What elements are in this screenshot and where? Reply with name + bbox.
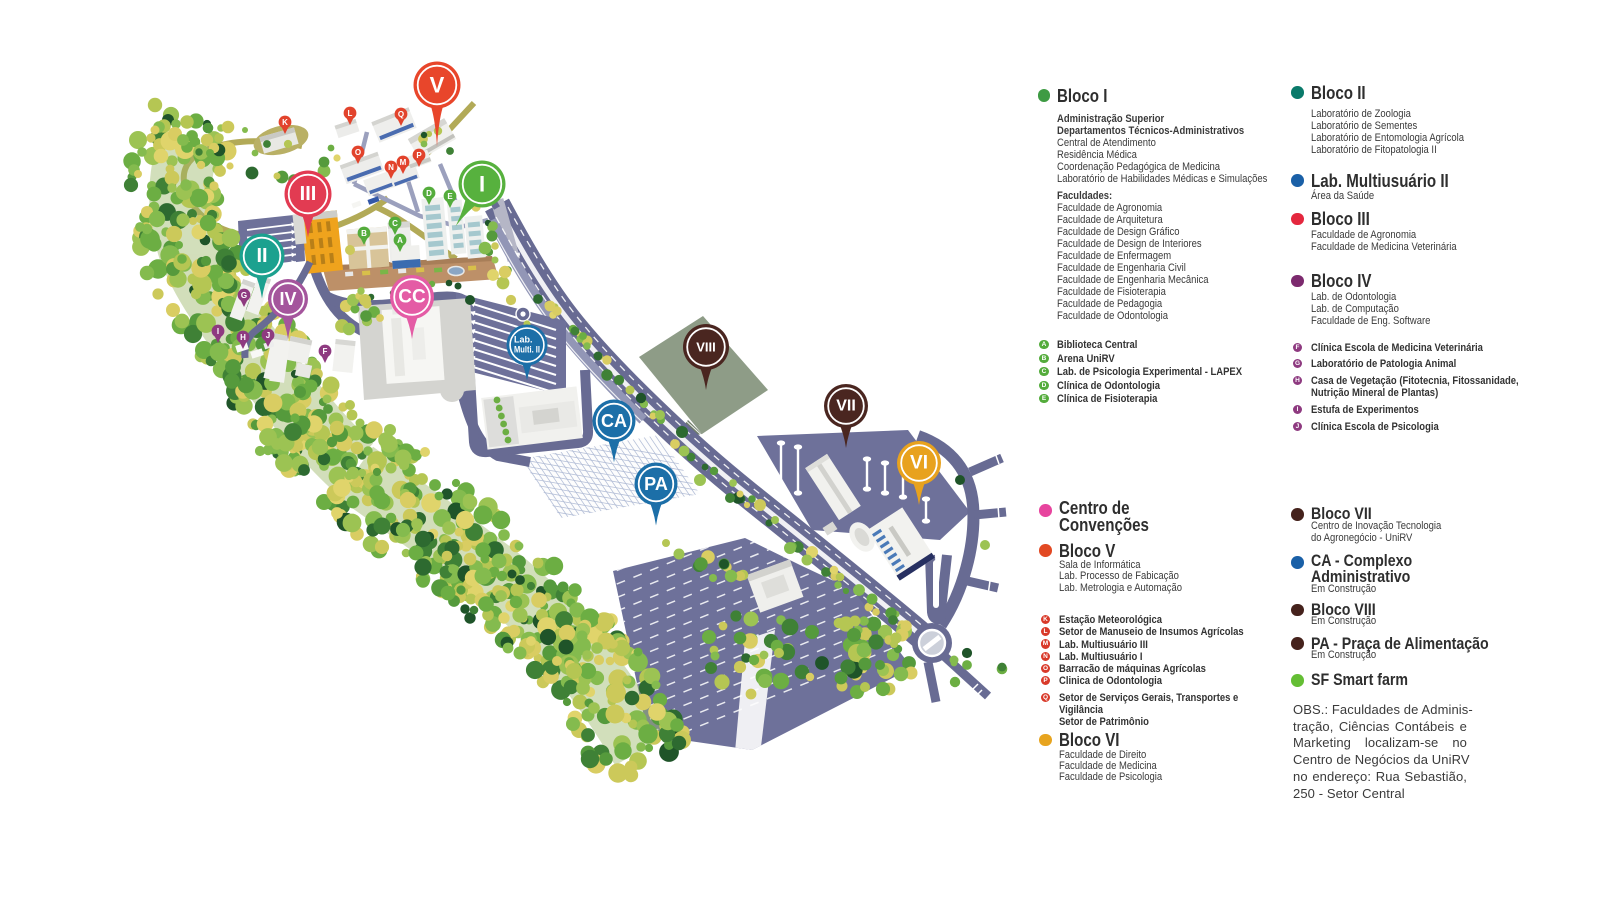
svg-text:VIII: VIII (696, 340, 716, 355)
svg-text:PA: PA (644, 474, 668, 494)
svg-text:C: C (392, 219, 398, 228)
svg-text:L: L (348, 109, 353, 118)
svg-text:A: A (397, 236, 403, 245)
svg-text:I: I (479, 172, 485, 197)
svg-text:II: II (256, 245, 267, 267)
svg-text:III: III (300, 183, 317, 205)
svg-text:I: I (217, 327, 219, 336)
svg-text:B: B (361, 229, 367, 238)
svg-text:CA: CA (601, 411, 627, 431)
svg-text:D: D (426, 189, 432, 198)
svg-text:M: M (400, 158, 407, 167)
svg-text:VI: VI (910, 453, 928, 474)
svg-text:P: P (416, 151, 422, 160)
svg-text:G: G (241, 291, 247, 300)
svg-text:J: J (266, 331, 270, 340)
svg-text:O: O (355, 148, 361, 157)
svg-text:IV: IV (279, 289, 296, 309)
svg-text:Lab.: Lab. (514, 335, 533, 345)
svg-text:F: F (323, 347, 328, 356)
svg-text:H: H (240, 333, 246, 342)
svg-text:VII: VII (836, 398, 856, 415)
svg-text:V: V (430, 73, 445, 98)
svg-text:Q: Q (398, 110, 404, 119)
svg-text:K: K (282, 118, 288, 127)
svg-text:N: N (388, 163, 394, 172)
svg-text:E: E (447, 192, 453, 201)
svg-text:Multi. II: Multi. II (514, 345, 540, 355)
svg-text:CC: CC (398, 287, 426, 308)
